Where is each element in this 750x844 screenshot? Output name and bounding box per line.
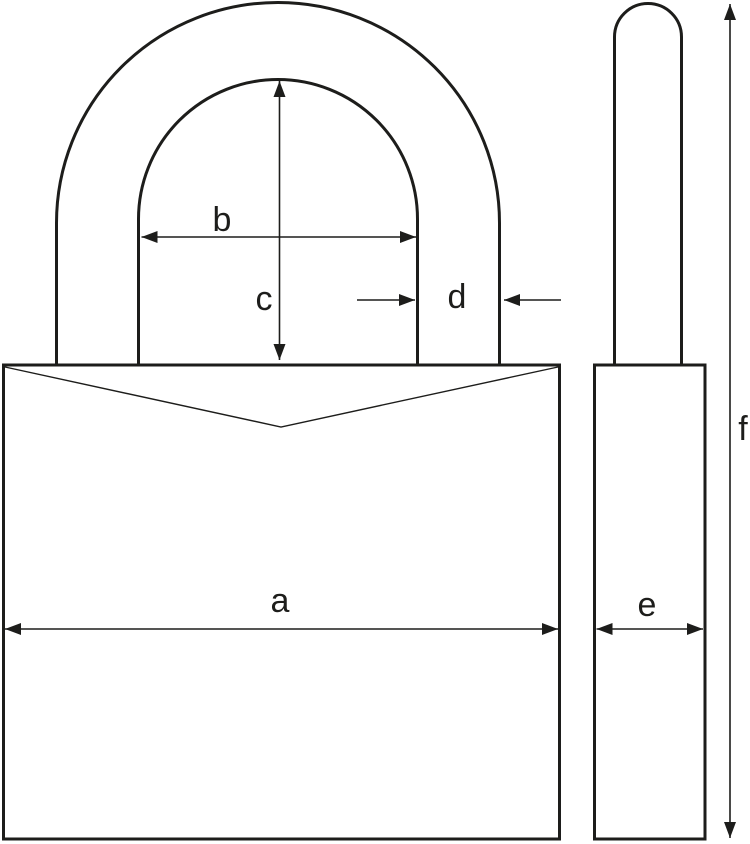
- shackle-inner-outline: [139, 80, 418, 366]
- dimension-a-label: a: [271, 582, 290, 620]
- dimension-d: d: [357, 278, 561, 316]
- padlock-side-view: [595, 4, 706, 840]
- padlock-front-view: [4, 3, 560, 840]
- shackle-outer-outline: [57, 3, 500, 366]
- dimension-c-label: c: [256, 280, 273, 318]
- padlock-dimension-diagram: a b c d e f: [0, 0, 750, 844]
- shackle-side-profile: [615, 4, 682, 366]
- dimension-c: c: [256, 81, 280, 360]
- dimension-d-label: d: [448, 278, 467, 316]
- dimension-e-label: e: [638, 586, 657, 624]
- diagram-svg: a b c d e f: [0, 0, 750, 844]
- dimension-b-label: b: [213, 201, 232, 239]
- dimension-f: f: [730, 4, 748, 838]
- dimension-f-label: f: [738, 410, 748, 448]
